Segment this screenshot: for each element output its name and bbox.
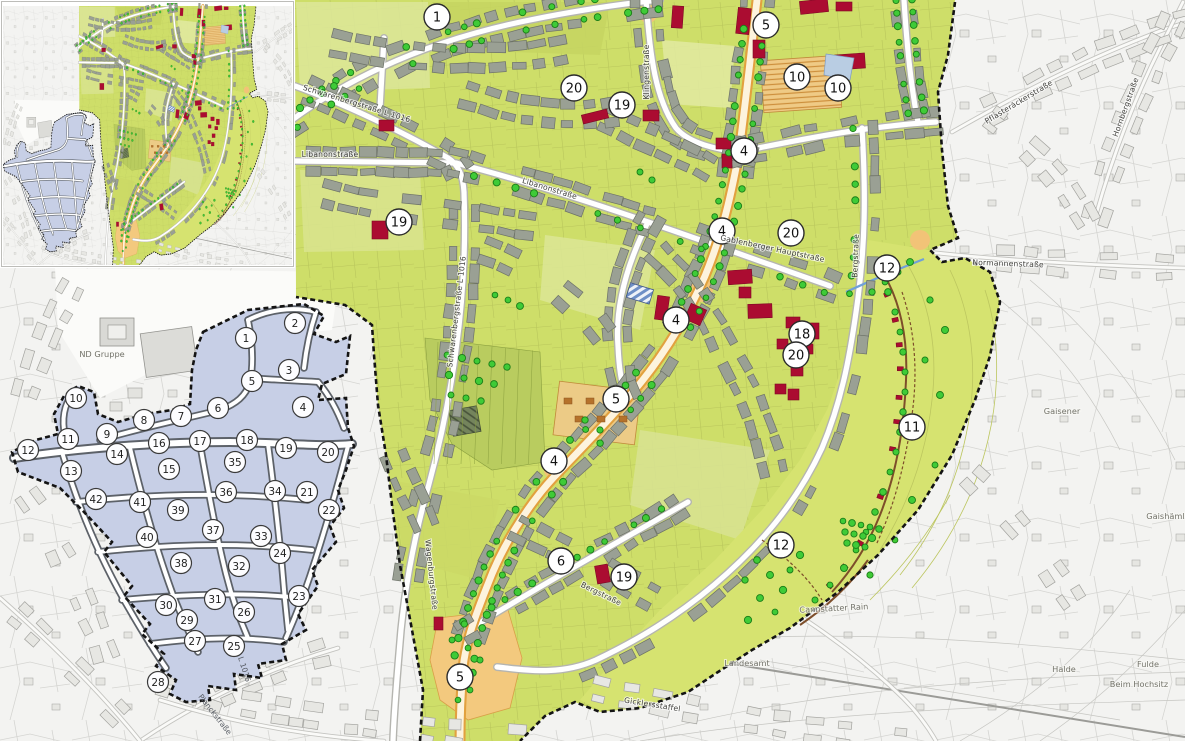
cadastral-building [997,245,1015,256]
marker-number: 6 [215,403,222,415]
tree-icon [727,133,734,140]
marker-number: 12 [773,539,790,554]
building [886,131,904,139]
marker-number: 12 [21,445,34,457]
building [468,284,478,300]
building [321,167,337,176]
marker-number: 19 [616,571,633,586]
tree-icon [560,478,567,485]
tree-icon [909,0,916,3]
tree-icon [731,103,738,110]
renewal-building [788,389,799,400]
tree-icon [685,286,692,293]
building [469,264,479,283]
area-label: Landesamt [724,658,770,668]
street-label: Klingenstraße [642,44,651,99]
marker-number: 36 [219,487,233,499]
cadastral-building [271,714,290,726]
marker-number: 13 [64,466,77,478]
marker-number: 9 [104,429,111,441]
marker-number: 10 [69,393,82,405]
tree-icon [403,44,410,51]
cadastral-building [1046,266,1065,277]
tree-icon [896,39,902,45]
tree-icon [592,0,599,3]
tree-icon [799,281,806,288]
tree-icon [648,381,655,388]
tree-icon [445,29,451,35]
tree-icon [867,524,873,530]
tree-icon [595,211,601,217]
tree-icon [475,377,482,384]
building [393,167,410,178]
block-marker-32: 32 [229,556,250,577]
tree-icon [918,94,925,101]
tree-icon [582,417,588,423]
building [396,147,409,158]
tree-icon [902,389,908,395]
tree-icon [754,557,761,564]
marker-number: 42 [89,494,102,506]
tree-icon [529,580,536,587]
building [506,91,519,104]
block-marker-1: 1 [236,328,257,349]
marker-number: 11 [904,421,921,436]
tree-icon [852,197,859,204]
tree-icon [602,539,608,545]
tree-icon [494,585,500,591]
tree-icon [347,69,353,75]
marker-number: 10 [789,71,806,86]
hillside-house [896,395,902,399]
tree-icon [567,437,574,444]
tree-icon [448,392,454,398]
tree-icon [625,9,632,16]
marker-number: 35 [228,457,241,469]
tree-icon [842,529,848,535]
plan-marker-1: 1 [424,4,450,30]
tree-icon [840,518,846,524]
tree-icon [587,546,594,553]
cadastral-building [806,717,824,726]
tree-icon [637,169,643,175]
map-stage[interactable]: 1520191010419420124182051141261951234567… [0,0,1185,741]
building [468,62,485,74]
tree-icon [294,124,300,130]
tree-icon [902,369,908,375]
marker-number: 16 [152,438,166,450]
plan-marker-4: 4 [731,138,757,164]
marker-number: 4 [300,402,307,414]
tree-icon [827,582,833,588]
marker-number: 33 [254,531,267,543]
area-label: Gaisener [1044,406,1081,416]
block-marker-15: 15 [159,459,180,480]
tree-icon [631,522,637,528]
area-label: Fulde [1137,659,1159,669]
tree-icon [897,53,903,59]
marker-number: 39 [171,505,184,517]
tree-icon [735,72,741,78]
block-marker-22: 22 [319,500,340,521]
building [532,58,545,69]
building [452,402,462,418]
building [414,569,424,583]
marker-number: 28 [151,677,164,689]
marker-number: 26 [237,607,251,619]
old-town-building [597,416,605,422]
tree-icon [750,121,756,127]
tree-icon [844,540,850,546]
tree-icon [489,598,496,605]
renewal-building [722,154,732,168]
cadastral-building [275,696,291,708]
building [508,40,527,51]
tree-icon [331,83,338,90]
tree-icon [597,440,603,446]
block-marker-40: 40 [137,527,158,548]
marker-number: 34 [268,486,282,498]
marker-number: 19 [614,99,631,114]
tree-icon [658,506,664,512]
plan-marker-6: 6 [548,548,574,574]
block-marker-19: 19 [276,438,297,459]
tree-icon [759,43,765,49]
tree-icon [740,25,747,32]
marker-number: 24 [273,548,287,560]
tree-icon [451,652,458,659]
block-marker-39: 39 [168,500,189,521]
building [871,217,880,231]
cadastral-building [449,719,461,730]
tree-icon [466,41,473,48]
tree-icon [597,427,603,433]
marker-number: 20 [788,349,805,364]
tree-icon [893,0,899,4]
marker-number: 31 [208,594,221,606]
tree-icon [910,22,917,29]
marker-number: 8 [141,415,148,427]
block-marker-27: 27 [185,631,206,652]
tree-icon [519,9,526,16]
building [370,56,385,68]
tree-icon [880,489,887,496]
tree-icon [901,81,907,87]
building [514,230,533,241]
tree-icon [517,303,524,310]
tree-icon [858,522,864,528]
marker-number: 15 [162,464,175,476]
tree-icon [893,449,899,455]
building [520,94,540,106]
marker-number: 1 [433,11,441,26]
tree-icon [910,9,916,15]
tree-icon [696,308,702,314]
marker-number: 5 [612,393,620,408]
plan-marker-5: 5 [603,386,629,412]
building [634,28,643,47]
tree-icon [927,297,933,303]
tree-icon [716,198,722,204]
tree-icon [628,407,634,413]
building [885,111,899,121]
tree-icon [594,14,601,21]
marker-number: 37 [206,525,219,537]
cadastral-building [682,712,698,724]
tree-icon [470,591,476,597]
building [869,138,879,154]
marker-number: 30 [159,600,172,612]
block-marker-20: 20 [318,442,339,463]
tree-icon [505,297,511,303]
tree-icon [449,637,455,643]
building [765,0,776,8]
area-label: Gaishämle [1146,511,1185,521]
tree-icon [876,526,883,533]
tree-icon [894,10,900,16]
block-marker-18: 18 [237,430,258,451]
block-marker-25: 25 [224,636,245,657]
plan-marker-20: 20 [778,220,804,246]
tree-icon [633,369,640,376]
building [306,166,321,176]
building [656,29,664,41]
marker-number: 25 [227,641,240,653]
block-marker-13: 13 [61,461,82,482]
building [413,42,425,51]
building [450,63,468,74]
building [728,88,737,102]
tree-icon [574,554,580,560]
marker-number: 20 [321,447,334,459]
tree-icon [307,97,313,103]
tree-icon [492,292,498,298]
marker-number: 5 [456,671,464,686]
marker-number: 19 [391,216,408,231]
tree-icon [523,27,529,33]
block-marker-28: 28 [148,672,169,693]
cadastral-building [1100,253,1117,260]
block-marker-9: 9 [97,424,118,445]
tree-icon [744,616,751,623]
plan-marker-5: 5 [447,664,473,690]
tree-icon [872,509,879,516]
tree-icon [478,398,485,405]
tree-icon [752,106,758,112]
tree-icon [851,531,857,537]
tree-icon [474,640,481,647]
tree-icon [489,361,495,367]
plan-marker-12: 12 [874,255,900,281]
tree-icon [936,391,943,398]
marker-number: 41 [133,497,146,509]
renewal-building [748,304,772,319]
block-marker-30: 30 [156,595,177,616]
block-marker-3: 3 [279,360,300,381]
building [863,299,873,314]
tree-icon [912,38,919,45]
tree-icon [796,551,803,558]
block-marker-23: 23 [289,586,310,607]
block-marker-8: 8 [134,410,155,431]
cadastral-building [1156,272,1172,280]
cadastral-building [289,717,304,727]
tree-icon [887,469,893,475]
building [360,168,375,175]
marker-number: 22 [322,505,335,517]
tree-icon [487,551,494,558]
marker-number: 23 [292,591,305,603]
building [377,146,395,158]
cadastral-building [624,683,640,693]
tree-icon [458,354,465,361]
area-label: Halde [1052,664,1076,674]
marker-number: 17 [193,436,206,448]
building [503,208,515,217]
tree-icon [697,256,704,263]
building [870,176,881,194]
tree-icon [481,564,487,570]
tree-icon [530,190,537,197]
tree-icon [529,518,535,524]
tree-icon [499,572,505,578]
small-building [110,402,122,411]
tree-icon [479,625,486,632]
building [905,128,925,139]
building [471,205,479,222]
tree-icon [721,250,727,256]
tree-icon [739,40,746,47]
building [487,42,506,53]
marker-number: 4 [672,314,680,329]
tree-icon [737,56,743,62]
tree-icon [505,559,512,566]
tree-icon [812,597,818,603]
tree-icon [465,605,472,612]
marker-number: 18 [240,435,253,447]
tree-icon [894,23,901,30]
building [561,120,572,127]
tree-icon [722,167,728,173]
tree-icon [642,514,649,521]
block-marker-12: 12 [18,440,39,461]
tree-icon [766,571,773,578]
old-town-building [586,398,594,404]
tree-icon [730,118,737,125]
marker-number: 11 [61,434,74,446]
renewal-building [728,269,753,285]
tree-icon [908,496,915,503]
building [541,117,555,129]
tree-icon [719,182,725,188]
building [804,124,817,133]
block-marker-35: 35 [225,452,246,473]
tree-icon [473,20,480,27]
cadastral-building [744,724,758,734]
plan-marker-4: 4 [663,307,689,333]
tree-icon [461,24,467,30]
block-marker-11: 11 [58,429,79,450]
cadastral-building [508,724,527,736]
plan-marker-4: 4 [541,448,567,474]
building [623,326,632,342]
tree-icon [655,6,662,13]
old-town-building [619,416,627,422]
tree-icon [533,478,540,485]
block-marker-31: 31 [205,589,226,610]
marker-number: 6 [557,555,565,570]
tree-icon [851,163,858,170]
building [409,148,428,158]
cadastral-building [422,717,435,727]
tree-icon [493,179,500,186]
tree-icon [502,597,508,603]
tree-icon [739,186,745,192]
urban-renewal-plan-map[interactable]: 1520191010419420124182051141261951234567… [0,0,1185,741]
plan-marker-19: 19 [609,92,635,118]
renewal-building [643,110,659,121]
inset-minimap [0,0,320,270]
tree-icon [478,38,484,44]
marker-number: 21 [300,487,313,499]
building [856,335,868,354]
block-marker-6: 6 [208,398,229,419]
cadastral-building [1024,246,1038,257]
tree-icon [470,172,477,179]
building [845,135,860,147]
tree-icon [677,239,683,245]
building [521,115,533,125]
tree-icon [755,74,762,81]
renewal-building [595,564,611,584]
tree-icon [922,357,928,363]
tree-icon [474,358,480,364]
marker-number: 4 [740,145,748,160]
plan-marker-20: 20 [783,342,809,368]
hillside-house [896,342,902,347]
tree-icon [475,577,482,584]
tree-icon [757,595,764,602]
tree-icon [477,657,483,663]
cadastral-building [895,728,907,737]
cadastral-building [363,728,377,738]
tree-icon [356,86,362,92]
overview-inset[interactable] [0,0,320,270]
marker-number: 18 [794,328,811,343]
marker-number: 19 [279,443,292,455]
block-marker-2: 2 [285,313,306,334]
street-label: Bergstraße [850,234,861,278]
tree-icon [692,270,698,276]
tree-icon [905,110,912,117]
renewal-building [434,617,443,630]
marker-number: 29 [180,615,193,627]
tree-icon [735,202,742,209]
block-marker-41: 41 [130,492,151,513]
building [607,287,616,302]
tree-icon [916,79,923,86]
block-marker-42: 42 [86,489,107,510]
building [432,62,445,74]
building [583,99,595,109]
tree-icon [850,125,856,131]
tree-icon [892,309,898,315]
tree-icon [450,45,457,52]
junction-plaza [910,230,930,250]
block-marker-36: 36 [216,482,237,503]
tree-icon [913,51,919,57]
tree-icon [552,21,558,27]
